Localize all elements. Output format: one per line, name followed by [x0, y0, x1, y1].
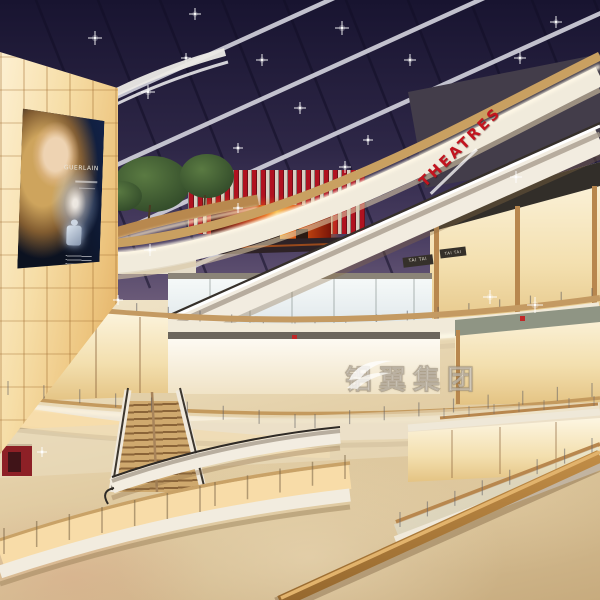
foreground-rail-layer — [0, 0, 600, 600]
mall-atrium-scene: GUERLAIN — [0, 0, 600, 600]
watermark: 铝翼集团 — [345, 350, 595, 404]
watermark-logo-swoosh — [345, 350, 399, 392]
wooden-handrail-highlight — [281, 452, 600, 598]
